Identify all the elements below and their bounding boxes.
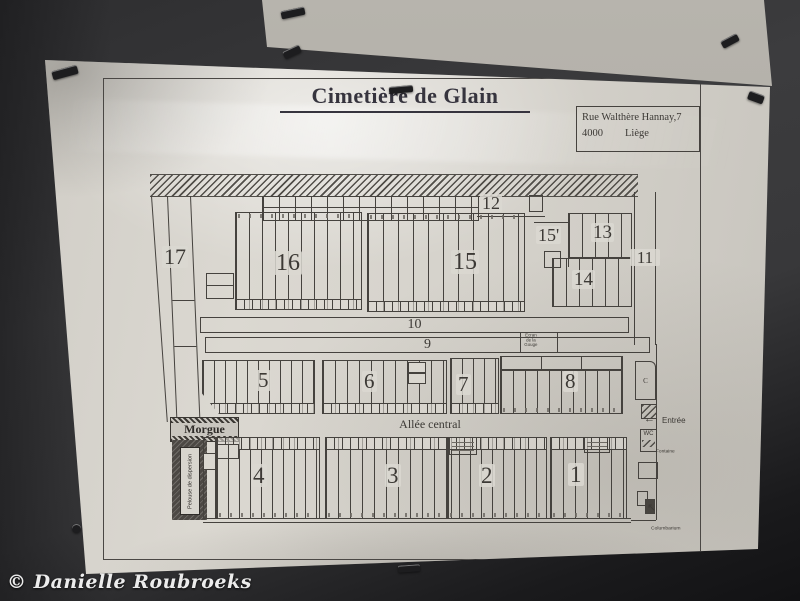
plot-cells-row — [326, 438, 451, 450]
section-16-number: 16 — [274, 251, 302, 275]
entrance-arrow-icon: ← — [644, 414, 655, 426]
section-9-number: 9 — [424, 337, 431, 353]
screw — [72, 524, 81, 533]
dispersion-label: Pelouse de dispersion — [187, 453, 193, 508]
plot-numbers-row — [450, 513, 544, 517]
edge-cells-strip — [203, 437, 216, 519]
section-14-number: 14 — [572, 270, 595, 289]
wc-box: WC — [640, 429, 657, 452]
small-building-boxes — [206, 273, 234, 299]
section-17-number: 17 — [162, 246, 188, 268]
small-plot-box — [529, 195, 543, 212]
section-4-number: 4 — [251, 464, 267, 487]
section-11-block — [634, 192, 656, 345]
columbarium-arrow-icon: ↖ — [647, 503, 656, 515]
address-city: Liège — [625, 126, 649, 142]
wc-label: WC — [641, 430, 656, 439]
plot-numbers-row — [370, 215, 522, 219]
photo-of-cemetery-map-sign: Cimetière de Glain Rue Walthère Hannay,7… — [0, 0, 800, 601]
section-15prime-number: 15' — [536, 226, 561, 244]
wc-hatch — [642, 440, 655, 447]
address-postal-code: 4000 — [582, 126, 603, 142]
small-label-box — [408, 362, 426, 373]
plot-numbers-row — [219, 513, 317, 517]
address-line2: 4000 Liège — [582, 126, 694, 142]
plot-cells-row — [236, 299, 361, 309]
section-7-number: 7 — [456, 374, 471, 395]
plot-cells-row — [451, 403, 498, 413]
section-15-block — [367, 213, 525, 312]
section-10-number: 10 — [408, 317, 422, 333]
shed-box: Ecran de la Gouge — [520, 332, 558, 353]
service-building-box — [638, 462, 658, 479]
plot-cells-row — [203, 403, 314, 413]
plot-numbers-row — [328, 513, 449, 517]
section-2-number: 2 — [479, 464, 495, 487]
metal-clip — [398, 564, 420, 573]
section-10-strip: 10 — [200, 317, 629, 333]
plot-cells-row — [323, 403, 446, 413]
section-12-number: 12 — [480, 194, 502, 212]
plot-numbers-row — [238, 214, 359, 218]
section-5-number: 5 — [256, 370, 271, 391]
section-1-number: 1 — [568, 463, 584, 486]
watermark-credit: © Danielle Roubroeks — [7, 571, 252, 593]
small-building-boxes — [217, 444, 239, 459]
section-6-number: 6 — [362, 371, 377, 392]
dispersion-lawn-strip: Pelouse de dispersion — [172, 440, 207, 520]
columbarium-label: Columbarium — [651, 526, 680, 531]
boundary-wall-hatch — [150, 174, 638, 197]
fountain-label: Fontaine — [656, 449, 675, 454]
c-building-label: C — [643, 377, 648, 385]
tiny-text-box — [584, 437, 610, 453]
dispersion-label-box: Pelouse de dispersion — [180, 447, 200, 515]
plot-numbers-row — [553, 513, 624, 517]
address-box: Rue Walthère Hannay,7 4000 Liège — [576, 106, 700, 152]
columbarium-label-wrap: Columbarium — [651, 520, 699, 537]
morgue-label: Morgue — [184, 422, 225, 437]
section-8-block — [500, 369, 623, 414]
fountain-label-wrap: Fontaine — [656, 443, 687, 460]
section-11-number: 11 — [630, 249, 660, 266]
small-label-box — [203, 453, 216, 470]
small-label-box — [408, 373, 426, 384]
section-13-number: 13 — [591, 223, 614, 242]
bottom-boundary-wall — [203, 518, 631, 523]
section-15-number: 15 — [451, 250, 479, 274]
plot-cells-row — [368, 301, 524, 311]
entrance-label: Entrée — [662, 417, 686, 425]
tiny-text-box — [449, 437, 477, 455]
plot-numbers-row — [503, 408, 620, 412]
section-8-number: 8 — [563, 371, 578, 392]
address-line1: Rue Walthère Hannay,7 — [582, 110, 694, 126]
section-6-block — [322, 360, 447, 414]
c-building-box: C — [635, 361, 656, 400]
section-9-strip: 9 — [205, 337, 650, 353]
section-3-number: 3 — [385, 464, 401, 487]
shed-label-line2: de la Gouge — [521, 338, 541, 348]
central-alley-label: Allée central — [350, 417, 510, 432]
